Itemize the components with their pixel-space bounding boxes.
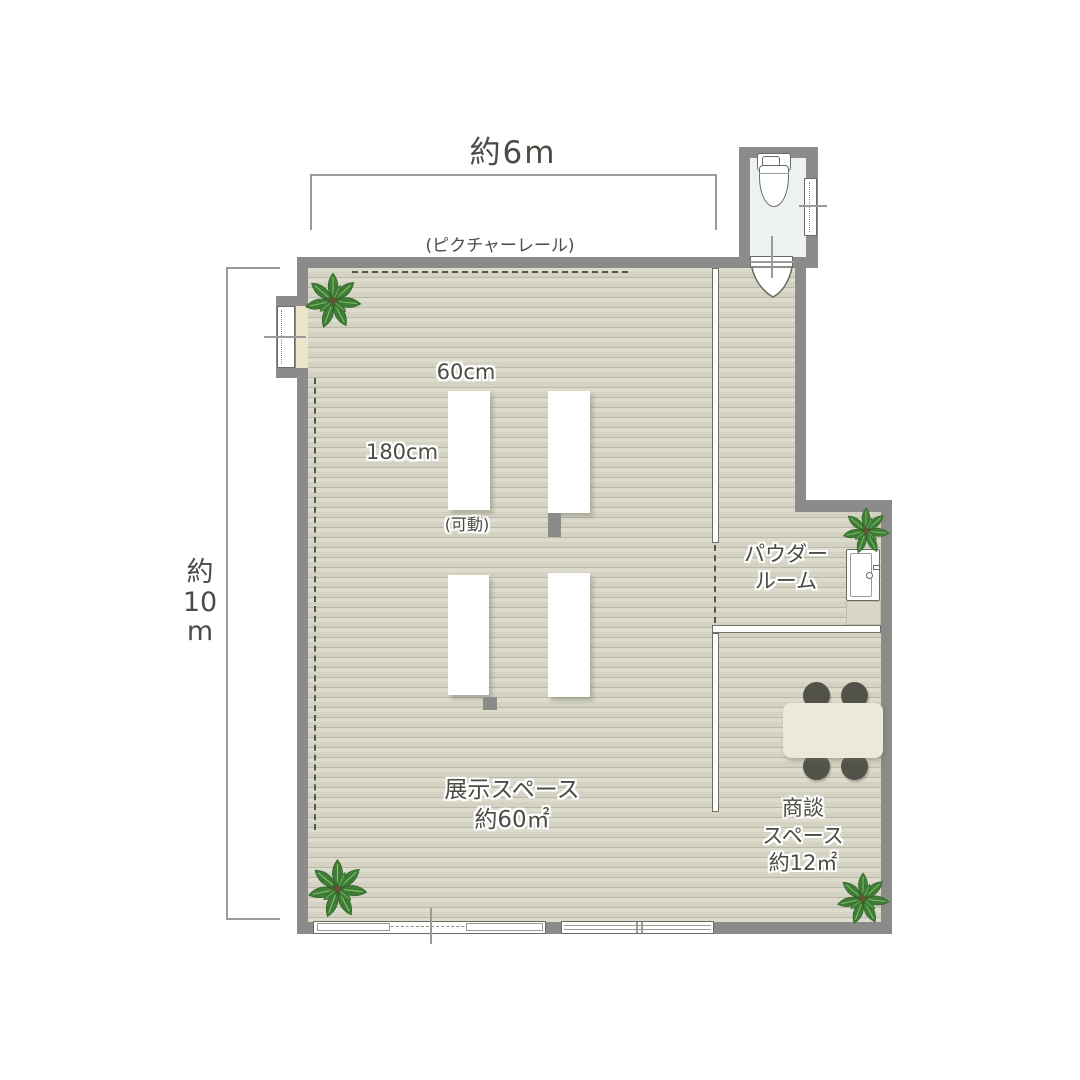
dimension-line-top	[310, 174, 717, 176]
floor-socket-2	[483, 697, 497, 710]
door-tick-v	[771, 236, 773, 278]
picture-rail-label: (ピクチャーレール)	[425, 237, 574, 257]
floor-plan: 約6m (ピクチャーレール) 約 10 m 60cm 180cm (可動) パウ…	[0, 0, 1080, 1080]
sink-counter-step	[846, 601, 881, 625]
display-table-1	[448, 391, 490, 510]
interior-wall-powder-divider	[712, 625, 881, 633]
window-toilet-track	[809, 182, 810, 232]
wall-top	[297, 257, 749, 268]
meeting-space-label: 商談 スペース 約12㎡	[762, 795, 843, 878]
window-bottom-right-symbol	[561, 921, 714, 934]
window-bottom-left-sash1	[317, 923, 390, 931]
window-bottom-right-line1	[564, 925, 711, 926]
floor-socket-1	[548, 513, 561, 537]
plant-icon	[306, 854, 369, 924]
dimension-line-left	[226, 267, 228, 920]
display-table-4	[548, 573, 590, 697]
window-bottom-left-tick	[430, 908, 432, 944]
window-toilet-tick	[799, 205, 827, 207]
plant-icon	[835, 870, 891, 928]
window-bottom-right-mullion2	[641, 922, 643, 933]
exhibition-space-label: 展示スペース 約60㎡	[444, 776, 579, 836]
fixture-width-label: 60cm	[437, 360, 496, 384]
window-bottom-right-mullion1	[636, 922, 638, 933]
wall-right-upper	[795, 257, 806, 512]
floor-notch-cover	[806, 268, 881, 500]
fixture-length-label: 180cm	[366, 440, 438, 464]
powder-room-label: パウダー ルーム	[744, 541, 828, 596]
dimension-tick-top-left	[310, 174, 312, 230]
powder-room-line2: ルーム	[744, 568, 828, 595]
exhibition-line1: 展示スペース	[444, 776, 579, 806]
meeting-table	[783, 703, 883, 758]
door-tick-h	[750, 261, 794, 263]
window-toilet-symbol	[804, 178, 817, 236]
sink-tap-icon	[873, 565, 880, 570]
interior-wall-upper	[712, 268, 719, 543]
plant-icon	[303, 271, 363, 331]
dimension-tick-top-right	[715, 174, 717, 230]
window-left-tick	[264, 336, 306, 338]
window-bottom-right-line2	[564, 929, 711, 930]
dimension-tick-left-top	[226, 267, 280, 269]
display-table-2	[548, 391, 590, 513]
sink-faucet-icon	[866, 572, 873, 579]
dimension-tick-left-bottom	[226, 918, 280, 920]
powder-room-line1: パウダー	[744, 541, 828, 568]
picture-rail-line-left	[314, 378, 316, 830]
dimension-height-line1: 約	[183, 558, 217, 588]
dimension-height-label: 約 10 m	[183, 558, 217, 647]
movable-partition-line	[714, 545, 716, 623]
plant-icon	[841, 506, 891, 556]
picture-rail-line-top	[352, 271, 628, 273]
meeting-line3: 約12㎡	[762, 850, 843, 878]
dimension-height-line2: 10	[183, 588, 217, 618]
toilet-seat-line	[759, 173, 789, 174]
dimension-height-line3: m	[183, 617, 217, 647]
meeting-line1: 商談	[762, 795, 843, 823]
exhibition-line2: 約60㎡	[444, 806, 579, 836]
display-table-3	[448, 575, 489, 695]
dimension-width-label: 約6m	[470, 136, 557, 172]
movable-label: (可動)	[445, 516, 490, 534]
interior-wall-lower	[712, 633, 719, 812]
meeting-line2: スペース	[762, 823, 843, 851]
window-bottom-left-sash2	[466, 923, 543, 931]
